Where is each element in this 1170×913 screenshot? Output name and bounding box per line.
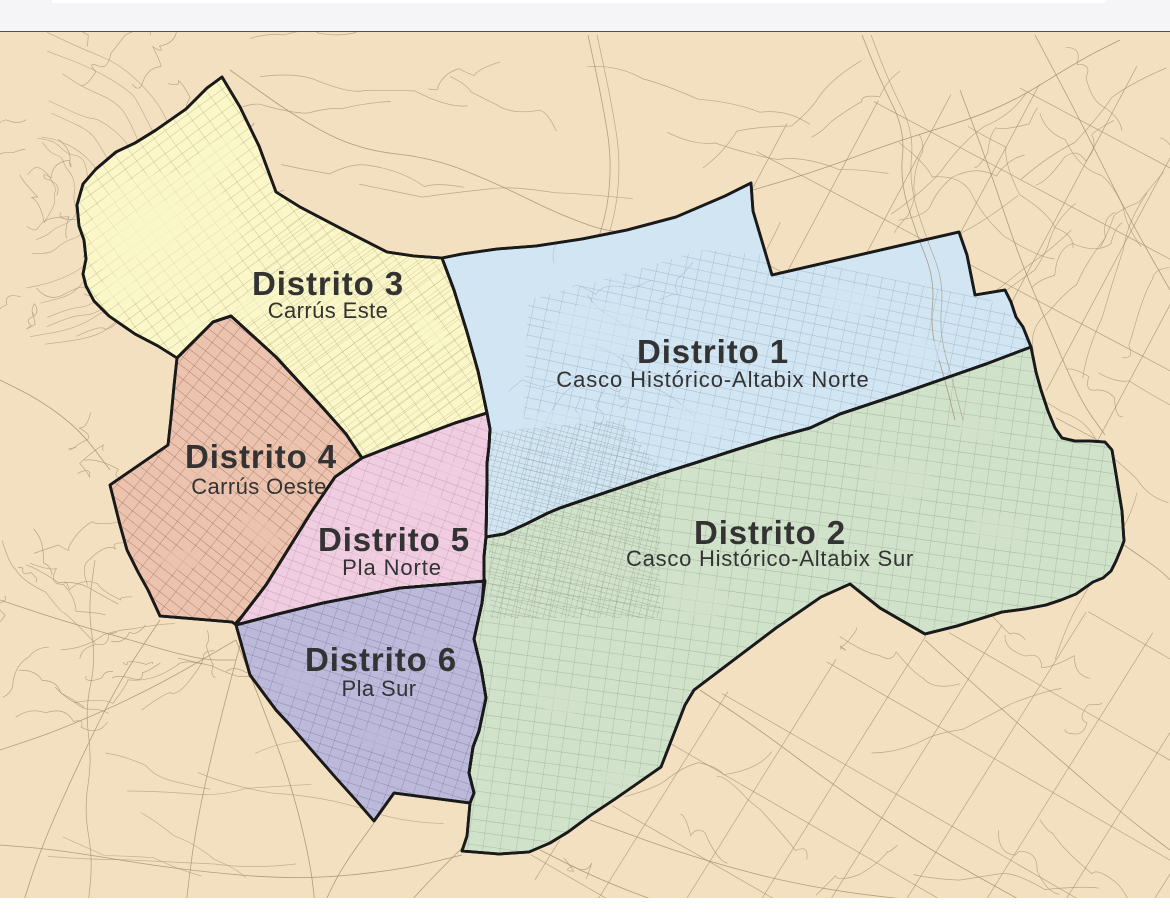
svg-text:Pla Sur: Pla Sur <box>342 676 417 701</box>
svg-text:Distrito 4: Distrito 4 <box>185 438 337 475</box>
svg-text:Distrito 6: Distrito 6 <box>305 641 457 678</box>
svg-text:Pla Norte: Pla Norte <box>342 555 442 580</box>
svg-text:Casco Histórico-Altabix Norte: Casco Histórico-Altabix Norte <box>556 367 869 392</box>
svg-text:Distrito 1: Distrito 1 <box>637 333 789 370</box>
svg-text:Carrús Oeste: Carrús Oeste <box>191 474 327 499</box>
svg-text:Casco Histórico-Altabix Sur: Casco Histórico-Altabix Sur <box>626 546 914 571</box>
svg-text:Carrús Este: Carrús Este <box>268 298 389 323</box>
svg-text:Distrito 3: Distrito 3 <box>252 265 404 302</box>
svg-text:Distrito 5: Distrito 5 <box>318 521 470 558</box>
